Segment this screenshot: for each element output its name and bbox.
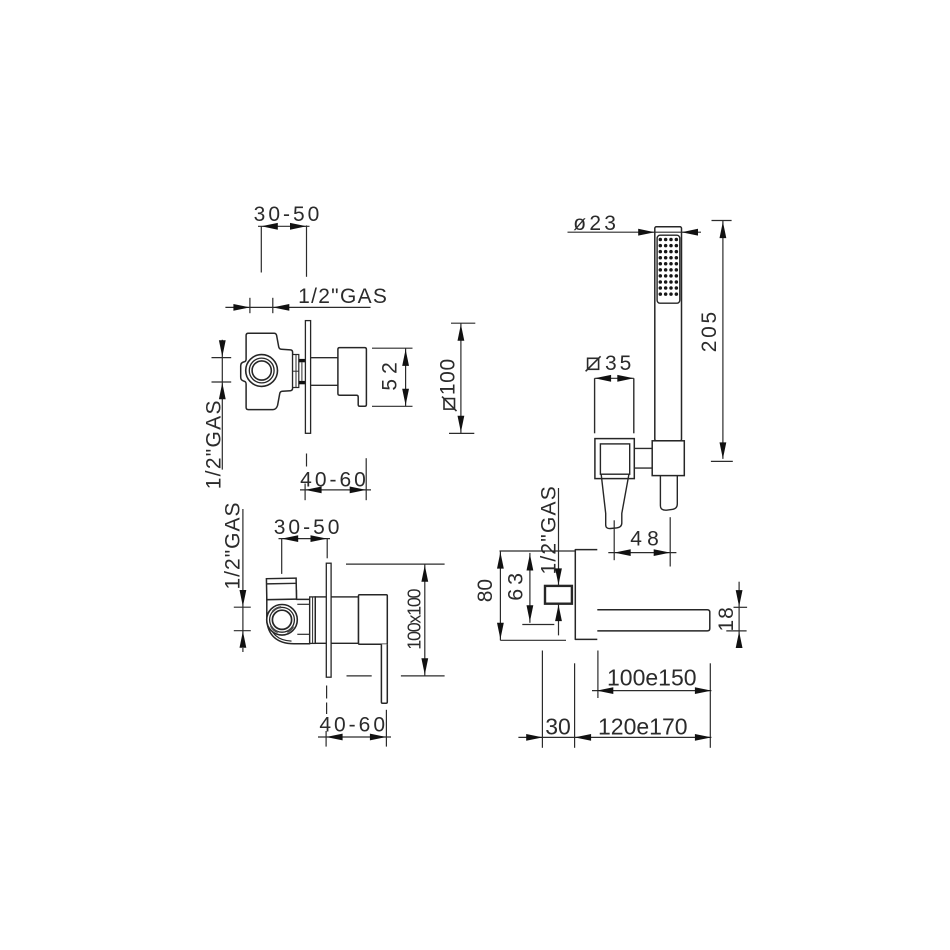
svg-text:1/2"GAS: 1/2"GAS: [203, 399, 226, 489]
svg-text:40-60: 40-60: [300, 469, 369, 492]
svg-text:1/2"GAS: 1/2"GAS: [538, 485, 561, 574]
svg-text:30-50: 30-50: [254, 203, 323, 226]
svg-text:100: 100: [437, 358, 460, 395]
svg-text:52: 52: [378, 357, 401, 391]
svg-text:48: 48: [630, 528, 664, 551]
svg-text:1/2"GAS: 1/2"GAS: [298, 285, 388, 308]
svg-text:40-60: 40-60: [319, 714, 388, 737]
svg-text:100e150: 100e150: [607, 665, 697, 691]
svg-text:80: 80: [474, 579, 497, 602]
svg-text:1/2"GAS: 1/2"GAS: [222, 502, 245, 590]
svg-text:18: 18: [715, 606, 738, 631]
svg-text:30: 30: [545, 713, 571, 739]
svg-text:30-50: 30-50: [274, 516, 343, 539]
svg-text:35: 35: [605, 352, 634, 375]
svg-text:120e170: 120e170: [598, 713, 688, 739]
svg-text:63: 63: [504, 569, 528, 601]
svg-text:ø23: ø23: [573, 212, 619, 235]
svg-text:100x100: 100x100: [404, 588, 424, 649]
svg-text:205: 205: [698, 309, 721, 352]
